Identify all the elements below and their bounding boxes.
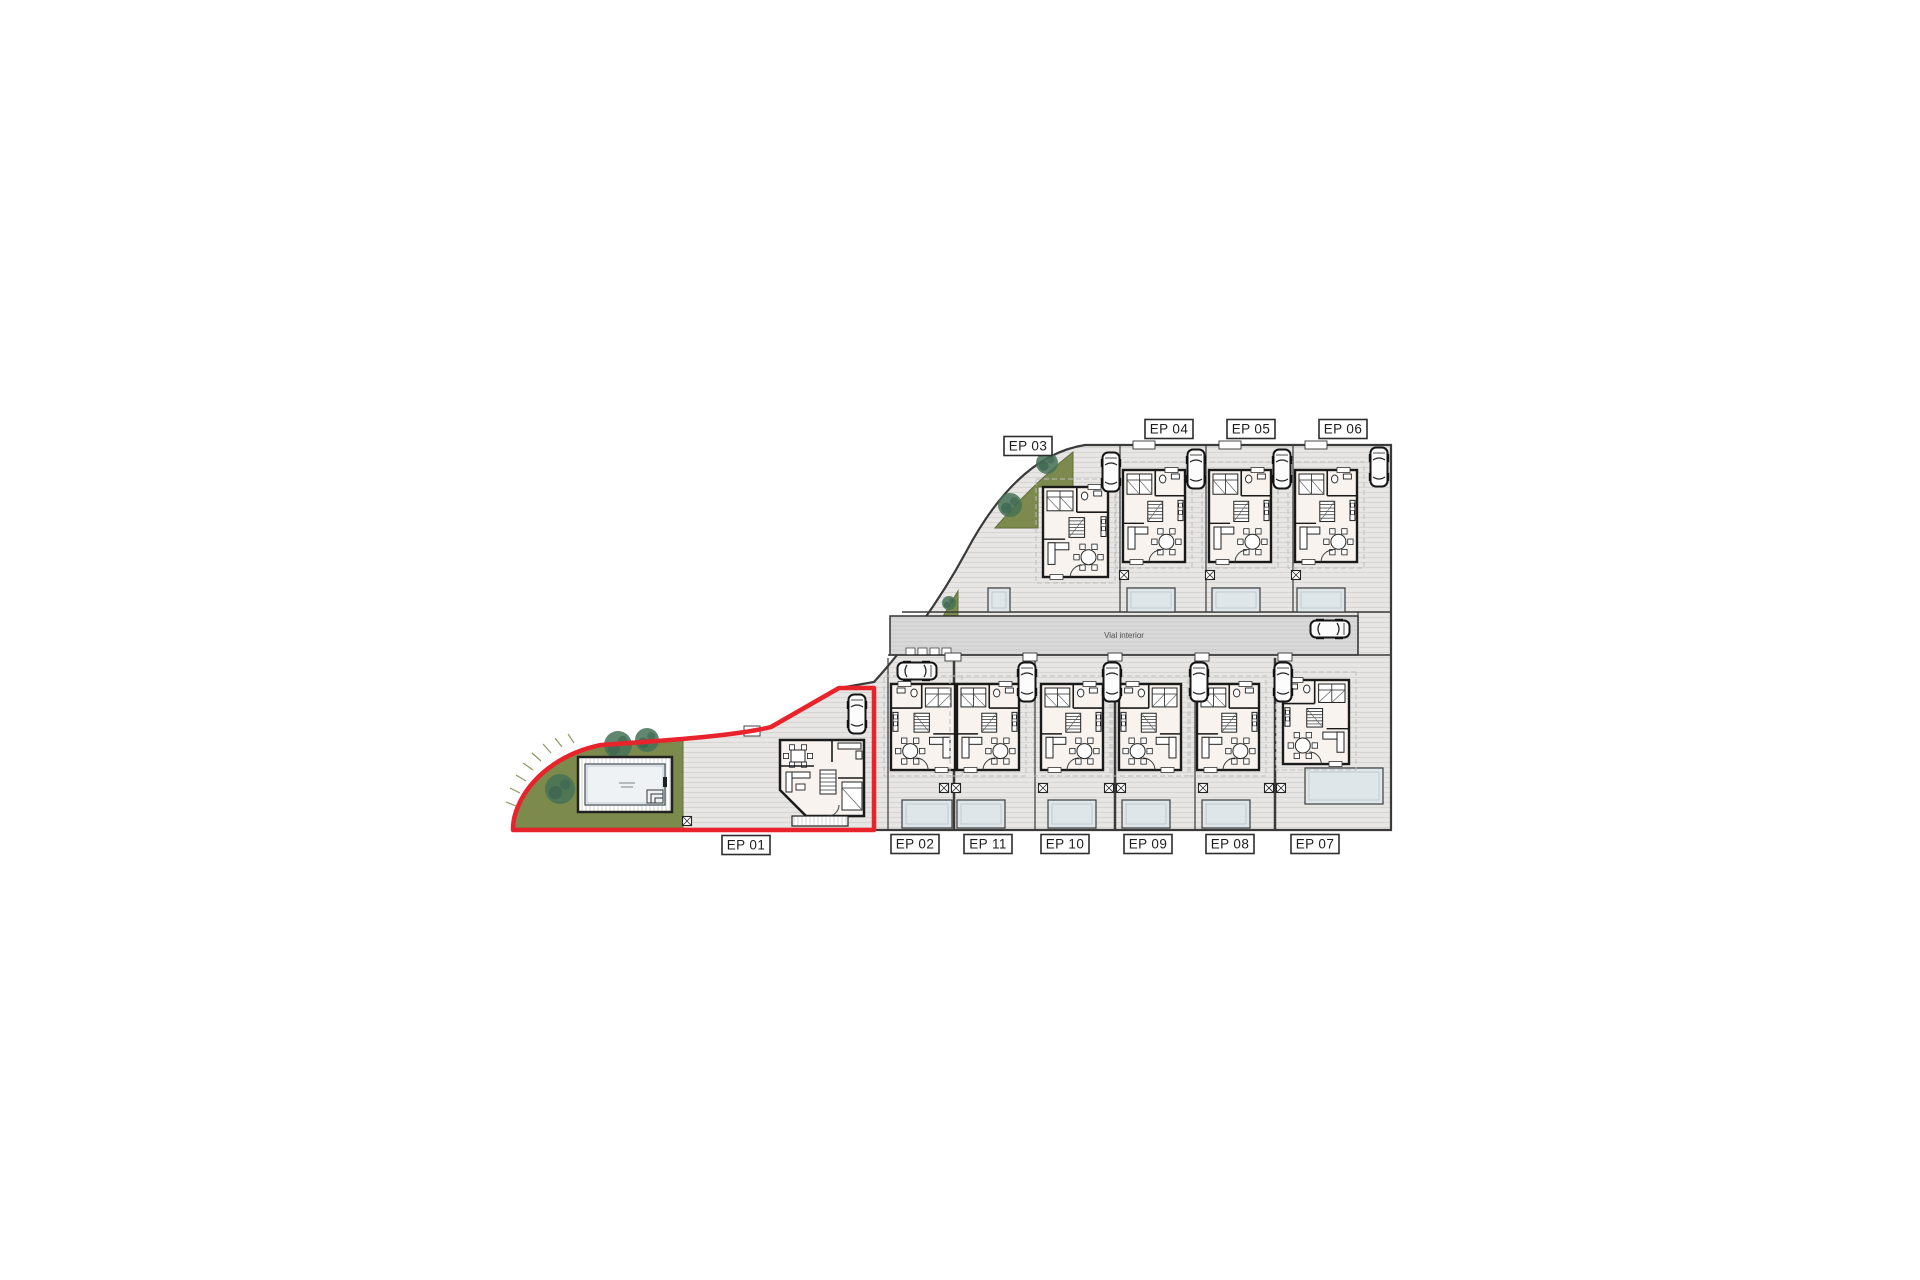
terrace — [988, 588, 1010, 612]
grass-tick — [555, 738, 562, 747]
window — [1204, 768, 1217, 773]
window — [1165, 468, 1178, 473]
chair — [1226, 748, 1231, 753]
grass-tick — [510, 788, 520, 793]
bed — [842, 782, 862, 810]
chair — [1088, 738, 1093, 743]
dining-table — [1077, 744, 1092, 759]
utility-marker-icon — [1120, 571, 1129, 580]
plot-label-ep03[interactable]: EP 03 — [1004, 437, 1052, 456]
plot-label-text-ep01: EP 01 — [727, 838, 766, 853]
plot-label-ep07[interactable]: EP 07 — [1291, 835, 1339, 854]
utility-marker-icon — [1292, 571, 1301, 580]
chair — [1094, 748, 1099, 753]
car-icon — [1101, 453, 1121, 492]
sofa — [1214, 527, 1221, 549]
chair — [1250, 748, 1255, 753]
plot-label-text-ep10: EP 10 — [1046, 837, 1085, 852]
gate-mark — [1219, 441, 1241, 449]
chair — [1244, 738, 1249, 743]
chair — [789, 745, 794, 750]
sink — [1005, 688, 1013, 693]
sink — [897, 688, 905, 693]
chair — [1141, 738, 1146, 743]
window — [1337, 468, 1350, 473]
window — [1239, 682, 1252, 687]
chair — [1147, 748, 1152, 753]
window — [935, 768, 948, 773]
sink — [1343, 474, 1351, 479]
window — [964, 768, 977, 773]
window — [1050, 575, 1063, 580]
sofa — [1048, 543, 1055, 565]
chair — [1306, 753, 1311, 758]
pool — [578, 757, 672, 812]
chair — [1244, 529, 1249, 534]
chair — [1232, 759, 1237, 764]
utility-marker-icon — [940, 784, 949, 793]
unit-floor-plan-ep09 — [1112, 676, 1188, 776]
plot-label-text-ep07: EP 07 — [1296, 837, 1335, 852]
grass-tick — [506, 802, 516, 806]
sofa — [1300, 527, 1307, 549]
chair — [1074, 555, 1079, 560]
gate-mark — [1305, 441, 1327, 449]
toilet — [993, 689, 999, 697]
unit-floor-plan-ep03 — [1036, 479, 1115, 583]
chair — [1232, 738, 1237, 743]
chair — [807, 753, 812, 758]
utility-marker-icon — [1039, 784, 1048, 793]
window — [1302, 560, 1315, 565]
chair — [1088, 759, 1093, 764]
chair — [1004, 738, 1009, 743]
sofa — [1337, 732, 1344, 752]
gate-mark — [945, 653, 961, 661]
chair — [1330, 529, 1335, 534]
chair — [1141, 759, 1146, 764]
gate-mark — [1108, 653, 1122, 661]
chair — [1306, 732, 1311, 737]
toilet — [1081, 492, 1087, 500]
chair — [783, 753, 788, 758]
unit-floor-plan-ep11 — [950, 676, 1026, 776]
chair — [1092, 544, 1097, 549]
toilet — [1245, 475, 1251, 483]
dining-table — [1245, 534, 1260, 549]
tree-icon — [942, 596, 956, 610]
grass-tick — [543, 744, 551, 753]
terrace — [1212, 588, 1260, 612]
chair — [1176, 539, 1181, 544]
sofa — [962, 737, 969, 758]
sofa — [1128, 527, 1135, 549]
plot-label-ep02[interactable]: EP 02 — [891, 835, 939, 854]
terrace — [1127, 588, 1175, 612]
road-steps — [930, 648, 939, 655]
chair — [801, 745, 806, 750]
dining-table — [993, 744, 1008, 759]
window — [1130, 560, 1143, 565]
road: Vial interior — [890, 616, 1358, 655]
chair — [902, 759, 907, 764]
dining-table — [1331, 534, 1346, 549]
chair — [1294, 753, 1299, 758]
chair — [1010, 748, 1015, 753]
car-icon — [1189, 663, 1209, 702]
plot-label-ep05[interactable]: EP 05 — [1227, 420, 1275, 439]
dining-table — [1233, 744, 1248, 759]
chair — [1152, 539, 1157, 544]
chair — [1070, 748, 1075, 753]
road-label: Vial interior — [1104, 631, 1144, 640]
sofa — [786, 772, 792, 792]
plot-label-text-ep11: EP 11 — [969, 837, 1007, 852]
pool-ladder — [663, 777, 667, 787]
window — [1329, 762, 1342, 767]
car-icon — [1186, 450, 1206, 489]
window — [1251, 468, 1264, 473]
chair — [1244, 759, 1249, 764]
plot-label-text-ep08: EP 08 — [1211, 837, 1250, 852]
grass-tick — [532, 753, 541, 761]
unit-floor-plan-ep06 — [1288, 462, 1364, 568]
chair — [1342, 549, 1347, 554]
sink — [1245, 688, 1253, 693]
car-icon — [1017, 663, 1037, 702]
dining-table — [1130, 744, 1145, 759]
plot-label-text-ep03: EP 03 — [1009, 439, 1048, 454]
utility-marker-icon — [1199, 784, 1208, 793]
toilet — [911, 689, 917, 697]
chair — [1256, 529, 1261, 534]
car-icon — [1369, 448, 1389, 487]
chair — [1262, 539, 1267, 544]
plot-label-ep09[interactable]: EP 09 — [1124, 835, 1172, 854]
chair — [1098, 555, 1103, 560]
gate-mark — [1133, 441, 1155, 449]
chair — [1076, 759, 1081, 764]
terrace — [1297, 588, 1345, 612]
chair — [1256, 549, 1261, 554]
grass-tick — [523, 763, 533, 770]
sofa — [1202, 737, 1209, 758]
site-plan-svg: Vial interiorEP 01EP 02EP 11EP 10EP 09EP… — [0, 0, 1920, 1280]
sofa — [1046, 737, 1053, 758]
dining-table — [791, 750, 805, 762]
window — [898, 682, 911, 687]
utility-marker-icon — [1117, 784, 1126, 793]
grass-tick — [516, 775, 526, 781]
gate-mark — [1195, 653, 1209, 661]
chair — [1324, 539, 1329, 544]
chair — [1129, 759, 1134, 764]
chair — [1294, 732, 1299, 737]
sofa — [1169, 737, 1176, 758]
fridge — [856, 751, 862, 759]
unit-floor-plan-ep04 — [1116, 462, 1192, 568]
chair — [986, 748, 991, 753]
road-steps — [918, 648, 927, 655]
sink — [1171, 474, 1179, 479]
chair — [1080, 544, 1085, 549]
chair — [1129, 738, 1134, 743]
toilet — [1304, 685, 1310, 693]
utility-marker-icon — [1105, 784, 1114, 793]
car-icon — [898, 661, 937, 681]
gate-mark — [1023, 653, 1037, 661]
window — [1161, 768, 1174, 773]
terrace — [1305, 768, 1383, 804]
utility-marker-icon — [1277, 784, 1286, 793]
utility-marker-icon — [1206, 571, 1215, 580]
utility-marker-icon — [1265, 784, 1274, 793]
chair — [1123, 748, 1128, 753]
road-steps — [906, 648, 915, 655]
chair — [992, 759, 997, 764]
plot-label-ep01[interactable]: EP 01 — [722, 836, 770, 855]
utility-marker-icon — [952, 784, 961, 793]
window — [1088, 485, 1101, 490]
sink — [1094, 491, 1102, 496]
toilet — [1077, 689, 1083, 697]
chair — [1170, 529, 1175, 534]
window — [1126, 682, 1139, 687]
unit-floor-plan-ep05 — [1202, 462, 1278, 568]
toilet — [1138, 689, 1144, 697]
chair — [902, 738, 907, 743]
plot-label-text-ep06: EP 06 — [1324, 422, 1363, 437]
chair — [1092, 565, 1097, 570]
window — [1048, 768, 1061, 773]
window — [999, 682, 1012, 687]
car-icon — [1272, 450, 1292, 489]
car-icon — [1102, 663, 1122, 702]
plot-label-text-ep02: EP 02 — [896, 837, 935, 852]
window — [1216, 560, 1229, 565]
chair — [1312, 743, 1317, 748]
toilet — [1331, 475, 1337, 483]
chair — [1004, 759, 1009, 764]
sink — [1089, 688, 1097, 693]
plot-label-ep11[interactable]: EP 11 — [964, 835, 1012, 854]
pool-dim-text-mark — [621, 786, 633, 788]
chair — [1080, 565, 1085, 570]
wood-deck — [792, 816, 848, 826]
kitchen-counter — [838, 743, 861, 749]
chair — [914, 738, 919, 743]
plot-label-ep08[interactable]: EP 08 — [1206, 835, 1254, 854]
chair — [1158, 529, 1163, 534]
chair — [896, 748, 901, 753]
car-icon — [847, 695, 867, 734]
chair — [1238, 539, 1243, 544]
plot-label-ep04[interactable]: EP 04 — [1145, 420, 1193, 439]
window — [1083, 682, 1096, 687]
unit-floor-plan-ep10 — [1034, 676, 1110, 776]
chair — [1076, 738, 1081, 743]
tree-icon — [998, 493, 1022, 517]
sink — [1125, 688, 1133, 693]
dining-table — [1295, 738, 1310, 753]
plot-label-text-ep09: EP 09 — [1129, 837, 1168, 852]
chair — [1348, 539, 1353, 544]
sofa — [943, 737, 950, 758]
tree-icon — [545, 774, 575, 804]
toilet — [1159, 475, 1165, 483]
chair — [992, 738, 997, 743]
coffee-table — [796, 784, 805, 790]
gate-mark — [1278, 653, 1292, 661]
chair — [1288, 743, 1293, 748]
chair — [1342, 529, 1347, 534]
plot-label-text-ep05: EP 05 — [1232, 422, 1271, 437]
chair — [914, 759, 919, 764]
car-icon — [1273, 663, 1293, 702]
pool-water — [585, 764, 665, 805]
chair — [1170, 549, 1175, 554]
sink — [1257, 474, 1265, 479]
dining-table — [1159, 534, 1174, 549]
plot-label-ep10[interactable]: EP 10 — [1041, 835, 1089, 854]
dining-table — [1081, 550, 1096, 565]
toilet — [1233, 689, 1239, 697]
utility-marker-icon — [683, 817, 692, 826]
dining-table — [903, 744, 918, 759]
car-icon — [1311, 619, 1350, 639]
plot-label-ep06[interactable]: EP 06 — [1319, 420, 1367, 439]
chair — [920, 748, 925, 753]
grass-tick — [568, 734, 574, 743]
plot-label-text-ep04: EP 04 — [1150, 422, 1189, 437]
site-plan-page: Vial interiorEP 01EP 02EP 11EP 10EP 09EP… — [0, 0, 1920, 1280]
pool-dim-text-mark — [619, 782, 635, 784]
